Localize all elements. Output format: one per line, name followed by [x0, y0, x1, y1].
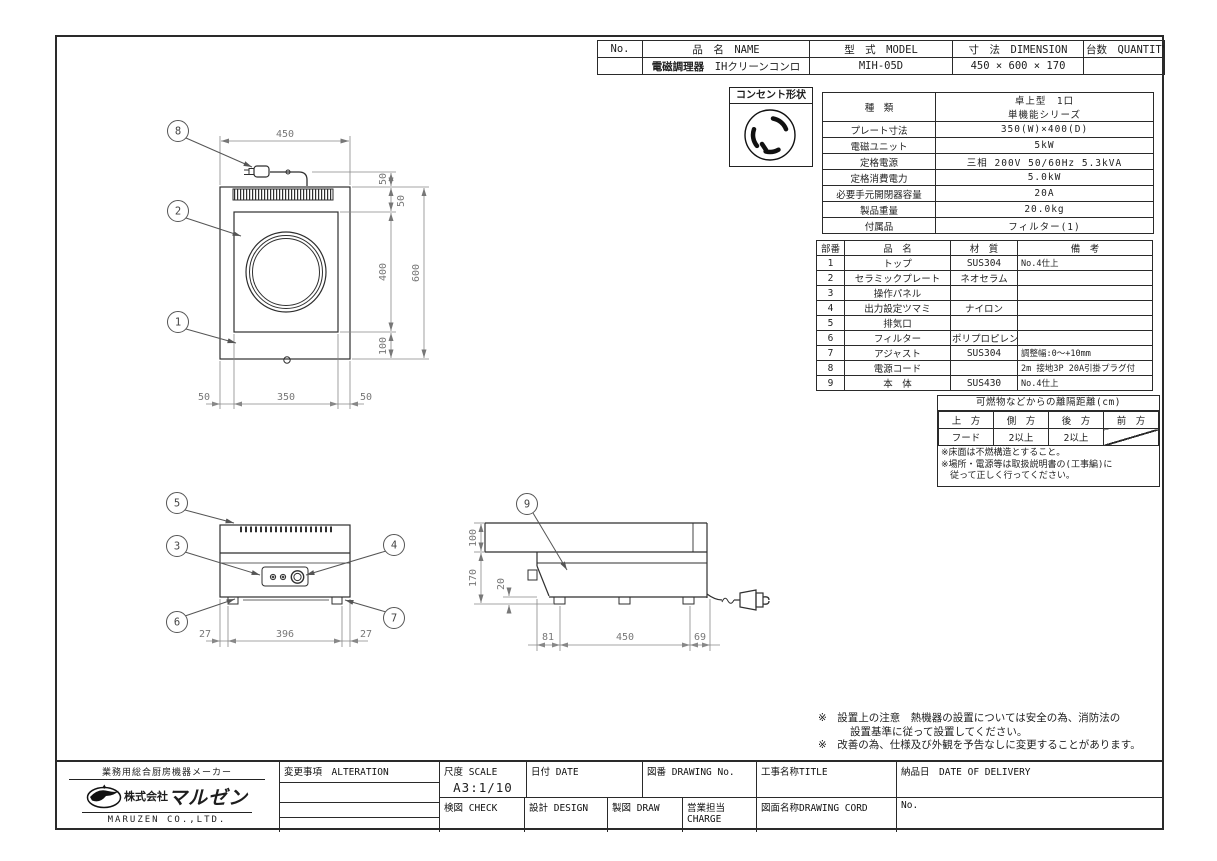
- delivery-cell: 納品日 DATE OF DELIVERY: [897, 762, 1164, 797]
- spec-label: 電磁ユニット: [823, 138, 936, 154]
- clearance-note: ※床面は不燃構造とすること。: [941, 448, 1157, 460]
- clearance-rear: 2以上: [1049, 429, 1104, 446]
- part-remarks: [1018, 286, 1153, 301]
- dim-front-right: 27: [360, 629, 372, 640]
- alteration-row-divider: [280, 802, 439, 803]
- spec-value: 20A: [936, 186, 1154, 202]
- date-cell: 日付 DATE: [527, 762, 643, 797]
- part-no: 9: [817, 376, 845, 391]
- callout-3: 3: [174, 541, 180, 553]
- drawing-no-cell: 図番 DRAWING No.: [643, 762, 757, 797]
- spec-label: 付属品: [823, 218, 936, 234]
- clearance-note: ※場所・電源等は取扱説明書の(工事編)に: [941, 460, 1157, 472]
- design-cell: 設計 DESIGN: [525, 797, 608, 832]
- note-line: ※ 改善の為、仕様及び外観を予告なしに変更することがあります。: [818, 739, 1178, 753]
- dimension-labels: 450 50 50 400 100 600 50 350 50 27 396 2…: [198, 129, 706, 643]
- part-no: 5: [817, 316, 845, 331]
- plan-view: [220, 166, 350, 363]
- part-no: 4: [817, 301, 845, 316]
- table-row: 2セラミックプレートネオセラム: [817, 271, 1153, 286]
- cell-model: MIH-05D: [810, 58, 953, 75]
- callout-6: 6: [174, 617, 180, 629]
- clearance-col-front: 前 方: [1104, 412, 1159, 429]
- part-remarks: [1018, 316, 1153, 331]
- part-remarks: 調整幅:0〜+10mm: [1018, 346, 1153, 361]
- callout-4: 4: [391, 540, 397, 552]
- part-material: ネオセラム: [951, 271, 1018, 286]
- table-row: 1トップSUS304No.4仕上: [817, 256, 1153, 271]
- clearance-side: 2以上: [994, 429, 1049, 446]
- parts-col-no: 部番: [817, 241, 845, 256]
- table-row: 3操作パネル: [817, 286, 1153, 301]
- part-name: アジャスト: [845, 346, 951, 361]
- table-row: 7アジャストSUS304調整幅:0〜+10mm: [817, 346, 1153, 361]
- clearance-title: 可燃物などからの離隔距離(cm): [938, 396, 1159, 411]
- title-header-table: No. 品 名 NAME 型 式 MODEL 寸 法 DIMENSION 台数 …: [597, 40, 1164, 75]
- alteration-row-divider: [280, 817, 439, 818]
- part-no: 7: [817, 346, 845, 361]
- callout-7: 7: [391, 613, 397, 625]
- parts-col-remarks: 備 考: [1018, 241, 1153, 256]
- parts-col-material: 材 質: [951, 241, 1018, 256]
- dim-plan-cord: 50: [378, 173, 389, 185]
- col-quantity: 台数 QUANTITY: [1084, 41, 1165, 58]
- dim-side-height: 170: [468, 569, 479, 587]
- spec-label: プレート寸法: [823, 122, 936, 138]
- charge-label: 営業担当CHARGE: [683, 798, 756, 825]
- table-row: 4出力設定ツマミナイロン: [817, 301, 1153, 316]
- company-box: 業務用総合厨房機器メーカー 株式会社 マルゼン MARUZEN CO.,LTD.: [55, 762, 280, 832]
- part-name: トップ: [845, 256, 951, 271]
- spec-value: 三相 200V 50/60Hz 5.3kVA: [936, 154, 1154, 170]
- dim-plan-seg-plate: 400: [378, 263, 389, 281]
- spec-value: 350(W)×400(D): [936, 122, 1154, 138]
- part-name: 出力設定ツマミ: [845, 301, 951, 316]
- part-no: 8: [817, 361, 845, 376]
- part-material: [951, 286, 1018, 301]
- dim-plan-depth: 600: [411, 264, 422, 282]
- part-material: SUS304: [951, 346, 1018, 361]
- dim-front-left: 27: [199, 629, 211, 640]
- part-material: ナイロン: [951, 301, 1018, 316]
- part-remarks: [1018, 271, 1153, 286]
- dim-side-foot: 20: [496, 578, 507, 590]
- note-line: ※ 設置上の注意 熱機器の設置については安全の為、消防法の: [818, 712, 1178, 726]
- company-brand: マルゼン: [168, 783, 248, 810]
- clearance-col-top: 上 方: [939, 412, 994, 429]
- scale-label: 尺度 SCALE: [440, 762, 526, 778]
- callout-8: 8: [175, 126, 181, 138]
- part-name: 電源コード: [845, 361, 951, 376]
- spec-value-line1: 卓上型 1口: [937, 93, 1152, 107]
- spec-label: 製品重量: [823, 202, 936, 218]
- callout-1: 1: [175, 317, 181, 329]
- delivery-label: 納品日 DATE OF DELIVERY: [897, 762, 1164, 778]
- spec-value-line2: 単機能シリーズ: [937, 107, 1152, 121]
- design-label: 設計 DESIGN: [525, 798, 607, 814]
- delivery-no-cell: No.: [897, 797, 1164, 832]
- part-material: [951, 361, 1018, 376]
- parts-col-name: 品 名: [845, 241, 951, 256]
- clearance-col-rear: 後 方: [1049, 412, 1104, 429]
- draw-label: 製図 DRAW: [608, 798, 682, 814]
- callout-2: 2: [175, 206, 181, 218]
- part-name: 操作パネル: [845, 286, 951, 301]
- title-label: 工事名称TITLE: [757, 762, 896, 778]
- dim-plan-left: 50: [198, 392, 210, 403]
- company-tagline: 業務用総合厨房機器メーカー: [69, 765, 265, 780]
- part-remarks: 2m 接地3P 20A引掛プラグ付: [1018, 361, 1153, 376]
- dim-plan-seg-top: 50: [396, 195, 407, 207]
- part-remarks: No.4仕上: [1018, 256, 1153, 271]
- power-plug-side: [707, 590, 769, 610]
- cell-product-name: 電磁調理器 IHクリーンコンロ: [643, 58, 810, 75]
- part-remarks: [1018, 331, 1153, 346]
- charge-cell: 営業担当CHARGE: [683, 797, 757, 832]
- clearance-front-na: [1104, 429, 1159, 446]
- drawing-sheet: 450 50 50 400 100 600 50 350 50 27 396 2…: [0, 0, 1217, 861]
- dim-plan-width: 450: [276, 129, 294, 140]
- front-view: [220, 525, 350, 604]
- installation-notes: ※ 設置上の注意 熱機器の設置については安全の為、消防法の 設置基準に従って設置…: [818, 712, 1178, 753]
- outlet-shape-label: コンセント形状: [730, 88, 812, 104]
- part-no: 2: [817, 271, 845, 286]
- clearance-top: フード: [939, 429, 994, 446]
- product-name: IHクリーンコンロ: [715, 61, 801, 73]
- cell-quantity: [1084, 58, 1165, 75]
- callout-balloons: 8 2 1 5 3 6 4 7 9: [167, 121, 568, 633]
- dim-plan-seg-bottom: 100: [378, 337, 389, 355]
- col-model: 型 式 MODEL: [810, 41, 953, 58]
- table-row: フード 2以上 2以上: [939, 429, 1159, 446]
- col-name: 品 名 NAME: [643, 41, 810, 58]
- dim-side-top: 100: [468, 529, 479, 547]
- part-material: ポリプロピレン: [951, 331, 1018, 346]
- drawing-cord-label: 図面名称DRAWING CORD: [757, 798, 896, 814]
- clearance-table: 可燃物などからの離隔距離(cm) 上 方 側 方 後 方 前 方 フード 2以上…: [937, 395, 1160, 487]
- part-no: 3: [817, 286, 845, 301]
- spec-label: 種 類: [823, 93, 936, 122]
- note-line: 設置基準に従って設置してください。: [818, 726, 1178, 740]
- spec-label: 定格消費電力: [823, 170, 936, 186]
- part-remarks: No.4仕上: [1018, 376, 1153, 391]
- col-dimension: 寸 法 DIMENSION: [953, 41, 1084, 58]
- dim-plan-right: 50: [360, 392, 372, 403]
- spec-value: フィルター(1): [936, 218, 1154, 234]
- spec-label: 必要手元開閉器容量: [823, 186, 936, 202]
- part-material: [951, 316, 1018, 331]
- cell-no: [598, 58, 643, 75]
- spec-label: 定格電源: [823, 154, 936, 170]
- maruzen-bird-logo-icon: [86, 783, 122, 809]
- alteration-label: 変更事項 ALTERATION: [280, 762, 439, 778]
- table-row: 5排気口: [817, 316, 1153, 331]
- company-name-en: MARUZEN CO.,LTD.: [82, 812, 252, 825]
- parts-table: 部番 品 名 材 質 備 考 1トップSUS304No.4仕上 2セラミックプレ…: [816, 240, 1152, 391]
- spec-value: 卓上型 1口 単機能シリーズ: [936, 93, 1154, 122]
- check-cell: 検図 CHECK: [440, 797, 525, 832]
- part-name: 本 体: [845, 376, 951, 391]
- scale-value: A3:1/10: [440, 780, 526, 795]
- dim-side-center: 450: [616, 632, 634, 643]
- part-material: SUS430: [951, 376, 1018, 391]
- part-no: 1: [817, 256, 845, 271]
- part-no: 6: [817, 331, 845, 346]
- company-prefix: 株式会社: [124, 788, 168, 804]
- alteration-row-divider: [280, 782, 439, 783]
- power-plug-plan: [244, 166, 307, 186]
- spec-value: 20.0kg: [936, 202, 1154, 218]
- outlet-shape-box: コンセント形状: [729, 87, 813, 167]
- col-no: No.: [598, 41, 643, 58]
- spec-table: 種 類 卓上型 1口 単機能シリーズ プレート寸法350(W)×400(D) 電…: [822, 92, 1153, 234]
- clearance-col-side: 側 方: [994, 412, 1049, 429]
- spec-value: 5.0kW: [936, 170, 1154, 186]
- table-row: 6フィルターポリプロピレン: [817, 331, 1153, 346]
- drawing-cord-cell: 図面名称DRAWING CORD: [757, 797, 897, 832]
- part-name: 排気口: [845, 316, 951, 331]
- cell-dimension: 450 × 600 × 170: [953, 58, 1084, 75]
- control-panel: [262, 567, 308, 586]
- part-name: セラミックプレート: [845, 271, 951, 286]
- scale-cell: 尺度 SCALE A3:1/10: [440, 762, 527, 797]
- drawing-no-label: 図番 DRAWING No.: [643, 762, 756, 778]
- table-row: 8電源コード2m 接地3P 20A引掛プラグ付: [817, 361, 1153, 376]
- dim-plan-center: 350: [277, 392, 295, 403]
- title-block: 業務用総合厨房機器メーカー 株式会社 マルゼン MARUZEN CO.,LTD.…: [55, 760, 1164, 830]
- part-name: フィルター: [845, 331, 951, 346]
- check-label: 検図 CHECK: [440, 798, 524, 814]
- part-material: SUS304: [951, 256, 1018, 271]
- table-row: 9本 体SUS430No.4仕上: [817, 376, 1153, 391]
- callout-5: 5: [174, 498, 180, 510]
- part-remarks: [1018, 301, 1153, 316]
- twist-lock-plug-icon: [730, 104, 811, 166]
- alteration-box: 変更事項 ALTERATION: [280, 762, 440, 832]
- clearance-note: 従って正しく行ってください。: [941, 471, 1157, 483]
- draw-cell: 製図 DRAW: [608, 797, 683, 832]
- dim-front-center: 396: [276, 629, 294, 640]
- product-type: 電磁調理器: [652, 61, 705, 73]
- dim-side-back: 81: [542, 632, 554, 643]
- spec-value: 5kW: [936, 138, 1154, 154]
- callout-9: 9: [524, 499, 530, 511]
- delivery-no-label: No.: [897, 798, 1164, 811]
- date-label: 日付 DATE: [527, 762, 642, 778]
- dim-side-front: 69: [694, 632, 706, 643]
- title-cell: 工事名称TITLE: [757, 762, 897, 797]
